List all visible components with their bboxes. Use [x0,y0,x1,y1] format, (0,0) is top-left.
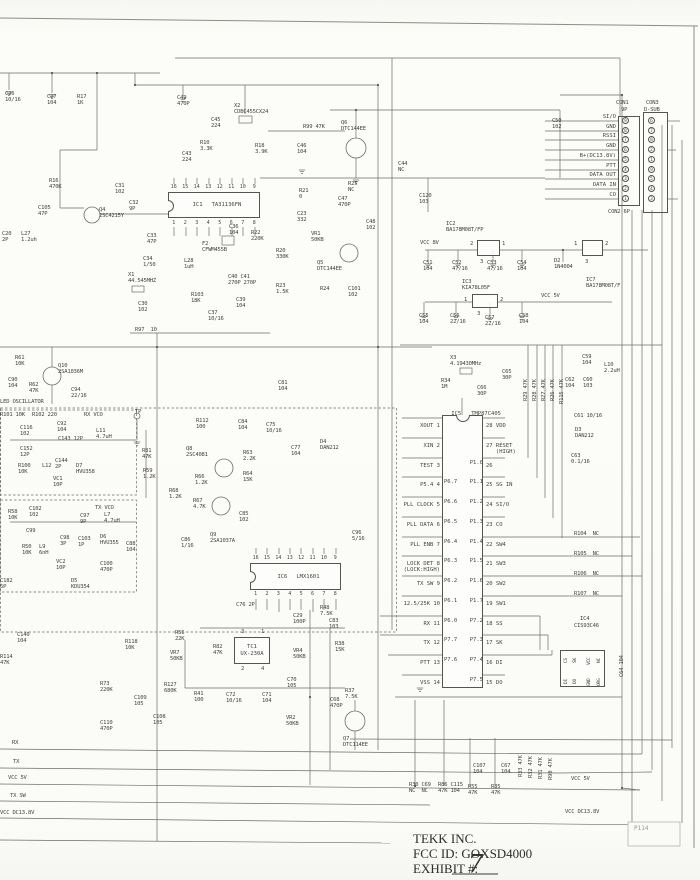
con3-pin-circle: 8 [648,136,655,143]
component-label: D7 HVU358 [76,463,95,476]
component-label: DO [573,679,578,684]
component-label: C98 3P [60,535,69,548]
pin-signal: TX SW 9 [366,581,440,587]
pin-number: 6 [307,591,318,597]
component-label: C85 102 [239,511,248,524]
company-name: TEKK INC. [413,831,477,847]
pin-port: P7.5 [464,677,483,683]
pin-port: P1.1 [464,479,483,485]
component-label: R99 47K [303,124,325,130]
component-label: R24 [320,286,329,292]
component-label: VCC 8V [420,240,439,246]
component-label: R127 680K [164,682,176,695]
component-label: NC [597,658,602,663]
component-label: C108 105 [153,714,165,727]
component-label: C90 104 [8,377,17,390]
component-label: C120 103 [419,193,431,206]
pin-port: P6.2 [444,578,457,584]
component-label: 2 [605,241,608,247]
connector-signal: DATA IN [540,182,616,188]
component-label: IC2 BA178M08T/FP [446,221,483,234]
component-label: C101 102 [348,286,360,299]
pin-number: 9 [249,184,261,190]
component-label: C52 47/16 [452,260,468,273]
component-label: C46 104 [297,143,306,156]
pin-signal: RX 11 [366,621,440,627]
pin-number: 5 [214,220,226,226]
component-label: R114 47K [0,654,12,667]
component-label: R100 10K [18,463,30,476]
ic7-chip [582,240,603,256]
pin-signal: 20 SW2 [486,581,582,587]
component-label: 3 [480,259,483,265]
component-label: 3 [585,259,588,265]
component-label: C182 5P [0,578,12,591]
component-label: R10 3.3K [200,140,212,153]
component-label: VCC [587,657,592,665]
component-label: C36 104 [229,224,238,237]
ic1-notch [168,200,174,212]
pin-number: 3 [273,591,284,597]
connector-signal: DATA OUT [540,172,616,178]
component-label: VR2 50KB [286,715,298,728]
component-label: C44 NC [398,161,407,174]
component-label: C58 104 [519,313,528,326]
component-label: C60 103 [583,377,592,390]
component-label: C100 470P [100,561,112,574]
component-label: R73 220K [100,681,112,694]
pin-signal: TX 12 [366,640,440,646]
component-label: IC7 BA178M08T/F [586,277,620,290]
pin-number: 8 [249,220,261,226]
component-label: R26 47K [550,379,556,401]
pin-signal: 26 [486,463,582,469]
pin-port: P1.4 [464,539,483,545]
pin-port: P1.2 [464,499,483,505]
ic1-ref: IC1 [193,202,203,208]
pin-number: 1 [168,220,180,226]
pin-signal: 19 SW1 [486,601,582,607]
component-label: R63 2.2K [243,450,255,463]
component-label: VR1 50KB [311,231,323,244]
con3-pin-circle: 5 [648,175,655,182]
component-label: R64 15K [243,471,252,484]
con1-pin-circle: 9 [622,117,629,124]
component-label: C84 104 [238,419,247,432]
component-label: X1 44.545MHZ [128,272,156,285]
pin-signal: PLL DATA 6 [366,522,440,528]
component-label: C110 470P [100,720,112,733]
component-label: R30 C69 NC NC [409,782,431,795]
con1-name: CON1 [616,100,628,106]
pin-number: 11 [226,184,238,190]
pin-signal: TEST 3 [366,463,440,469]
component-label: 1 [464,297,467,303]
component-label: C86 1/16 [181,537,193,550]
component-label: R37 7.5K [345,688,357,701]
component-label: R90 47K [548,758,554,780]
component-label: C50 102 [552,118,561,131]
pin-number: 14 [191,184,203,190]
con3-pin-circle: 6 [648,117,655,124]
component-label: Q5 DTC144EE [317,260,342,273]
component-label: C26 10/16 [5,91,21,104]
component-label: R106 NC [574,571,599,577]
pin-port: P1.6 [464,578,483,584]
pin-port: P1.3 [464,519,483,525]
component-label: C23 332 [297,211,306,224]
component-label: C143 12P [58,436,83,442]
component-label: L11 4.7uH [96,428,112,441]
component-label: C53 47/16 [487,260,503,273]
component-label: C107 104 [473,763,485,776]
connector-signal: CO [540,192,616,198]
component-label: VC1 10P [53,476,62,489]
pin-number: 11 [307,555,318,561]
pin-number: 12 [296,555,307,561]
pin-number: 8 [330,591,341,597]
con3-pin-circle: 2 [648,146,655,153]
con3-pin-circle: 4 [648,185,655,192]
ic1-part: TA31136FN [212,202,242,208]
component-label: C67 104 [501,763,510,776]
component-label: C109 105 [134,695,146,708]
pin-signal: 21 SW3 [486,561,582,567]
pin-signal: 23 CO [486,522,582,528]
component-label: R66 1.2K [195,474,207,487]
component-label: ORG [597,678,602,686]
component-label: R23 1.5K [276,283,288,296]
component-label: C75 10/16 [266,422,282,435]
component-label: C33 47P [147,233,156,246]
page-ref: P114 [634,825,648,832]
component-label: Q4 2SC4215Y [99,207,124,220]
pin-number: 4 [284,591,295,597]
ic5-chip [442,415,483,688]
component-label: C96 5/16 [352,530,364,543]
component-label: R18 3.9K [255,143,267,156]
component-label: R48 7.5K [320,605,332,618]
component-label: 2 [241,666,244,672]
component-label: R35 47K [491,784,500,797]
pin-signal: XIN 2 [366,443,440,449]
component-label: C116 102 [20,425,32,438]
component-label: VCC DC13.8V [0,810,34,816]
component-label: D5 KDU354 [71,578,90,591]
component-label: D6 HVU355 [100,534,119,547]
pin-signal: PLL ENB 7 [366,542,440,548]
pin-number: 5 [296,591,307,597]
ic6-pins-top: 161514131211109 [250,555,341,561]
pin-port: P6.5 [444,519,457,525]
component-label: C103 1P [78,536,90,549]
component-label: C61 10/16 [574,413,602,419]
component-label: C72 10/16 [226,692,242,705]
component-label: R50 10K [22,544,31,557]
component-label: C81 104 [278,380,287,393]
ic5-pin-row: VSS 14 [366,668,440,704]
component-label: R102 220 [32,412,57,418]
component-label: R29 47K [523,379,529,401]
pin-number: 1 [250,591,261,597]
component-label: DI [564,679,569,684]
component-label: RX VCO [84,412,103,418]
pin-port: P6.4 [444,539,457,545]
connector-signal: GND [540,143,616,149]
component-label: C47 470P [338,196,350,209]
component-label: R97 10 [135,327,157,333]
transistor-symbols [43,138,366,731]
con1-pin-circle: 3 [622,175,629,182]
component-label: C99 [26,528,35,534]
component-label: RX [12,740,18,746]
pin-signal: PTT 13 [366,660,440,666]
ic6-part: LMX1601 [296,574,319,580]
component-label: L7 4.7uH [104,512,120,525]
component-label: D2 1N4004 [554,258,573,271]
pin-signal: 18 SS [486,621,582,627]
component-label: C27 104 [47,94,56,107]
pin-number: 15 [180,184,192,190]
component-label: R62 47K [29,382,38,395]
component-label: L12 [42,463,51,469]
component-label: C31 102 [115,183,124,196]
pin-number: 7 [318,591,329,597]
component-label: R56 22K [175,630,184,643]
pin-signal: VSS 14 [366,680,440,686]
component-label: R82 47K [213,644,222,657]
component-label: C152 12P [20,446,32,459]
component-label: VR7 50KB [170,650,182,663]
component-label: C48 102 [366,219,375,232]
pin-port: P6.3 [444,558,457,564]
component-label: 3 [477,311,480,317]
component-label: 2 [500,297,503,303]
component-label: R25 NC [348,181,357,194]
component-label: Q6 DTC144EE [341,120,366,133]
pin-number: 9 [330,555,341,561]
component-label: C51 104 [423,260,432,273]
component-label: C34 1/50 [143,256,155,269]
component-label: R41 100 [194,691,203,704]
connector-row: CO 1 3 [540,192,670,203]
con3-pin-circle: 1 [648,156,655,163]
pin-signal: 25 SG IN [486,482,582,488]
ic5-ref: IC5 [451,411,461,417]
pin-number: 12 [214,184,226,190]
component-label: R118 10K [125,639,137,652]
tc1-part: UX-230A [240,651,263,658]
component-label: VCC 5V [8,775,27,781]
component-label: C83 103 [329,618,338,631]
component-label: C88 104 [126,541,135,554]
pin-signal: 22 SW4 [486,542,582,548]
component-label: TP [135,409,141,415]
component-label: C64 104 [619,655,625,677]
component-label: Q7 DTC114EE [343,736,368,749]
component-label: C105 47P [38,205,50,218]
pin-number: 10 [318,555,329,561]
con1-pin-circle: 5 [622,156,629,163]
component-label: 4 [261,666,264,672]
component-label: 1 [502,241,505,247]
ic1-pins-top: 161514131211109 [168,184,260,190]
component-label: Q8 2SC4081 [186,446,208,459]
component-label: R55 47K [468,784,477,797]
component-label: R31 47K [538,757,544,779]
pin-port: P7.7 [444,637,457,643]
component-label: R22 220K [251,230,263,243]
component-label: C30 102 [138,301,147,314]
component-label: C97 9P [80,513,89,526]
exhibit-number: 7 [468,850,483,878]
component-label: L28 1uH [184,258,193,271]
component-label: C70 105 [287,677,296,690]
component-label: R32 47K [528,756,534,778]
component-label: C65 30P [502,369,511,382]
component-label: C94 22/16 [71,387,87,400]
component-label: 1 [574,241,577,247]
ic3-chip [472,294,498,308]
component-label: R61 10K [15,355,24,368]
component-label: C63 0.1/16 [571,453,590,466]
ic1-pins-bottom: 12345678 [168,220,260,226]
component-label: R105 NC [574,551,599,557]
component-label: R27 47K [541,379,547,401]
component-label: C57 22/16 [485,315,501,328]
pin-signal: 24 SI/O [486,502,582,508]
component-label: R68 1.2K [169,488,181,501]
component-label: C49 470P [177,95,189,108]
component-label: C45 224 [211,117,220,130]
pin-signal: 28 VDD [486,423,582,429]
component-label: R103 18K [191,292,203,305]
pin-port: P7.3 [464,637,483,643]
pin-signal: XOUT 1 [366,423,440,429]
pin-port: P7.2 [464,618,483,624]
pin-port: P1.0 [464,460,483,466]
component-label: 2 [470,241,473,247]
con1-pin-circle: 6 [622,146,629,153]
component-label: C39 104 [236,297,245,310]
component-label: C37 10/16 [208,310,224,323]
con1-pin-circle: 7 [622,136,629,143]
component-label: C54 104 [517,260,526,273]
component-label: TX SW [10,793,26,799]
pin-signal: PLL CLOCK 5 [366,502,440,508]
component-label: R67 4.7K [193,498,205,511]
component-label: C92 104 [57,421,66,434]
component-label: VR4 50KB [293,648,305,661]
component-label: R59 1.2K [143,468,155,481]
component-label: TX VCO [95,505,114,511]
component-label: L9 6nH [39,544,48,557]
pin-port: P7.4 [464,657,483,663]
pin-number: 13 [284,555,295,561]
ic6-chip: IC6 LMX1601 [250,563,341,590]
component-label: R86 C115 47K 104 [438,782,463,795]
pin-signal: P5.4 4 [366,482,440,488]
component-label: C43 224 [182,151,191,164]
component-label: D3 DAN212 [575,427,594,440]
component-label: C29 100P [293,613,305,626]
connector-signal: B+(DC13.8V) [540,153,616,159]
component-label: D4 DAN212 [320,439,339,452]
pin-port: P6.1 [444,598,457,604]
connector-signal: PTT [540,163,616,169]
component-label: Q10 2SA1036M [58,363,83,376]
component-label: IC3 KIA78L05F [462,279,490,292]
pin-number: 10 [237,184,249,190]
tc1-ref: TC1 [247,644,257,651]
component-label: TX [13,759,19,765]
component-label: R112 100 [196,418,208,431]
component-label: R58 10K [8,509,17,522]
component-label: L10 2.2uH [604,362,620,375]
con3-name: CON3 [646,100,658,106]
pin-number: 2 [261,591,272,597]
component-label: C56 22/16 [450,313,466,326]
con3-pin-circle: 3 [648,195,655,202]
component-label: R20 330K [276,248,288,261]
component-label: 1 [261,629,264,635]
component-label: R101 10K [0,412,25,418]
ic2-chip [477,240,500,256]
ic1-chip: IC1 TA31136FN [168,192,260,218]
con1-sub: 9P [621,107,627,113]
component-label: C62 104 [565,377,574,390]
pin-number: 16 [250,555,261,561]
con3-sub: D-SUB [644,107,660,113]
component-label: R104 NC [574,531,599,537]
pin-number: 15 [261,555,272,561]
pin-port: P1.7 [464,598,483,604]
component-label: 3 [241,629,244,635]
component-label: C77 104 [291,445,300,458]
component-label: R28 47K [532,379,538,401]
pin-number: 16 [168,184,180,190]
component-label: R21 0 [299,188,308,201]
pin-signal: 12.5/25K 10 [366,601,440,607]
pin-number: 7 [237,220,249,226]
pin-port: P6.0 [444,618,457,624]
component-label: Q9 2SA1037A [210,532,235,545]
pin-number: 4 [203,220,215,226]
component-label: LED OSCILLATOR [0,399,44,405]
schematic-sheet: IC1 TA31136FN 161514131211109 12345678 I… [0,0,700,880]
ic6-pins-bottom: 12345678 [250,591,341,597]
component-label: VC2 10P [56,559,65,572]
pin-port: P6.7 [444,479,457,485]
component-label: C76 2P [236,602,255,608]
ic5-pin-row: 15 DO P7.5 [486,668,582,704]
component-label: C59 104 [582,354,591,367]
component-label: C71 104 [262,692,271,705]
ic4-ref: IC4 [580,616,589,622]
component-label: VCC DC13.8V [565,809,599,815]
ic6-ref: IC6 [277,574,287,580]
component-label: R16 470K [49,178,61,191]
component-label: SK [573,658,578,663]
pin-number: 2 [180,220,192,226]
component-label: X2 CDBC455CX24 [234,103,268,116]
con1-pin-circle: 1 [622,195,629,202]
component-label: F2 CFWM455B [202,241,227,254]
component-label: C144 2P [55,458,67,471]
pin-number: 3 [191,220,203,226]
component-label: CS [564,658,569,663]
component-label: C40 C41 270P 270P [228,274,256,287]
